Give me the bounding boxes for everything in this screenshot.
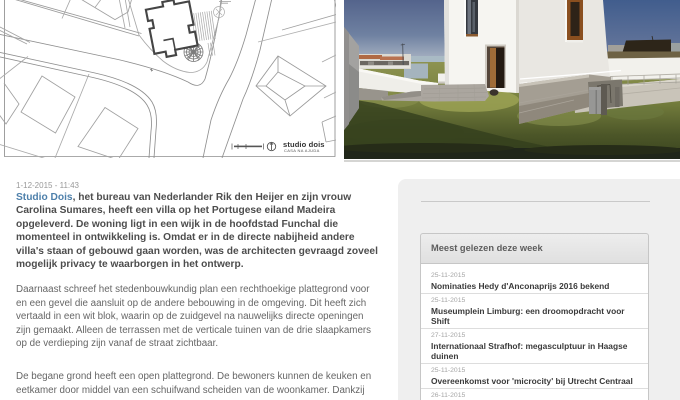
svg-text:CASA NA AJUDA: CASA NA AJUDA	[284, 148, 320, 153]
